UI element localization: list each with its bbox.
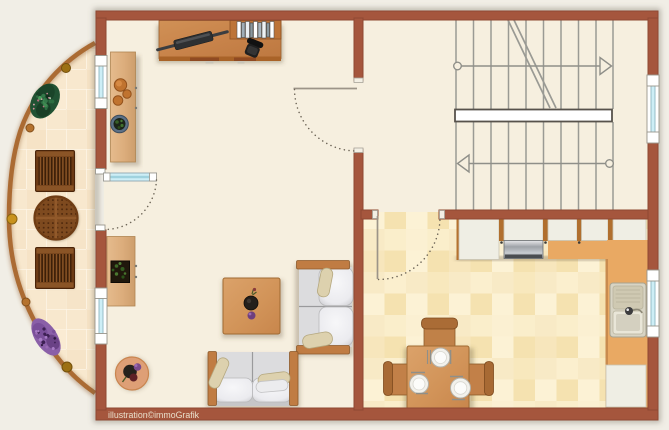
svg-text:illustration©immoGrafik: illustration©immoGrafik: [108, 410, 200, 420]
